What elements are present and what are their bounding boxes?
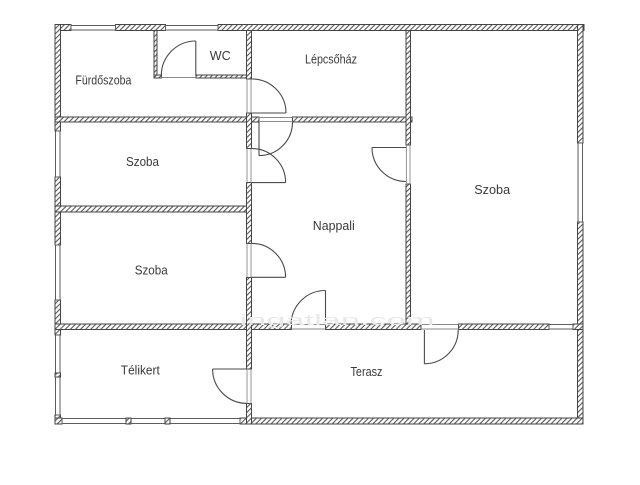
svg-text:Lépcsőház: Lépcsőház [305,52,357,67]
svg-text:Terasz: Terasz [351,364,383,379]
svg-text:Szoba: Szoba [126,154,160,169]
svg-text:Szoba: Szoba [135,263,169,278]
svg-text:Fürdőszoba: Fürdőszoba [75,72,132,87]
svg-text:Nappali: Nappali [313,218,355,233]
svg-text:Szoba: Szoba [474,182,511,197]
svg-text:Télikert: Télikert [121,363,160,378]
svg-text:ingatlan.com: ingatlan.com [240,312,435,329]
svg-text:WC: WC [210,48,231,63]
